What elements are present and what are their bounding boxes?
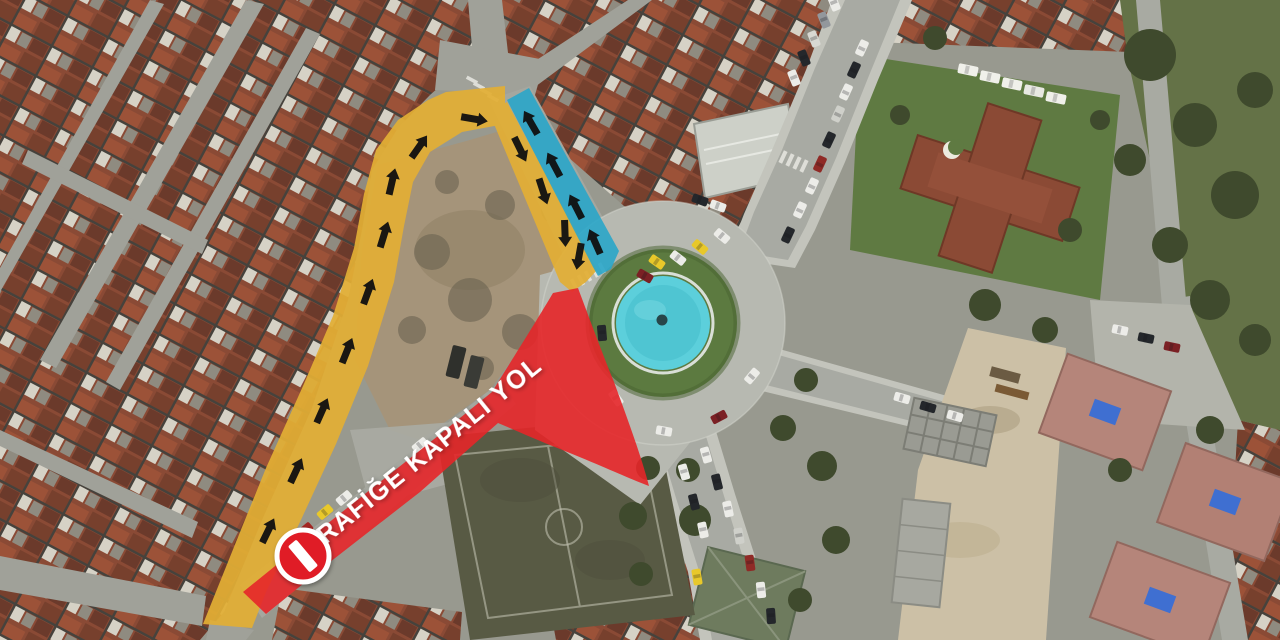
terminal-building — [892, 499, 951, 607]
aerial-map: TRAFİĞE KAPALI YOL — [0, 0, 1280, 640]
no-entry-icon — [277, 530, 329, 582]
satellite-background — [0, 0, 1280, 640]
map-canvas: TRAFİĞE KAPALI YOL — [0, 0, 1280, 640]
fountain-center — [657, 315, 668, 326]
